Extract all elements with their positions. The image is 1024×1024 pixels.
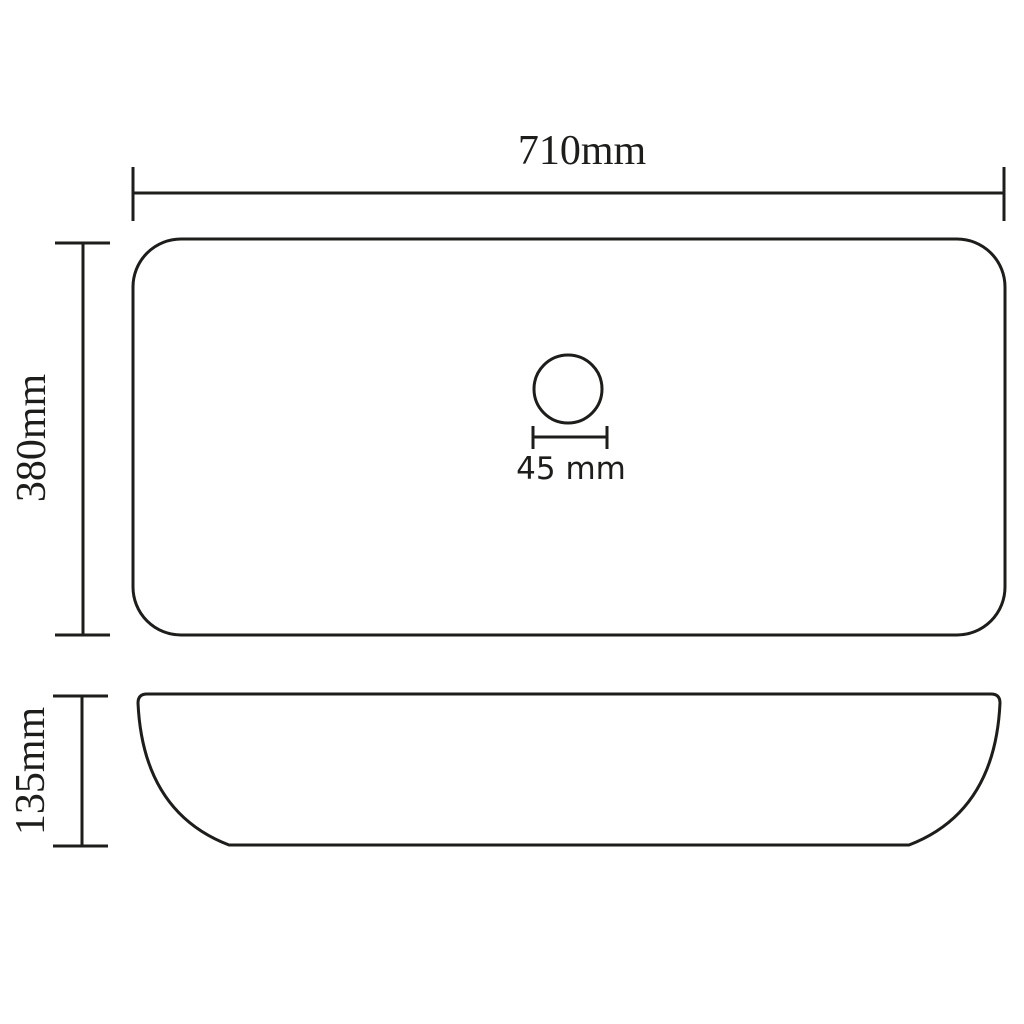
depth-dimension-label: 380mm	[9, 374, 55, 503]
depth-dimension: 380mm	[9, 243, 110, 635]
basin-dimension-diagram: 45 mm 710mm 380mm 135mm	[0, 0, 1024, 1024]
width-dimension: 710mm	[133, 128, 1004, 221]
drain-dimension-label: 45 mm	[516, 451, 626, 487]
technical-drawing-page: 45 mm 710mm 380mm 135mm	[0, 0, 1024, 1024]
side-view	[138, 694, 1000, 845]
drain-dimension: 45 mm	[516, 426, 626, 487]
height-dimension: 135mm	[8, 696, 108, 846]
drain-hole	[534, 355, 602, 423]
basin-side-outline	[138, 694, 1000, 845]
height-dimension-label: 135mm	[8, 707, 54, 836]
top-view: 45 mm	[133, 239, 1005, 635]
width-dimension-label: 710mm	[518, 128, 647, 174]
